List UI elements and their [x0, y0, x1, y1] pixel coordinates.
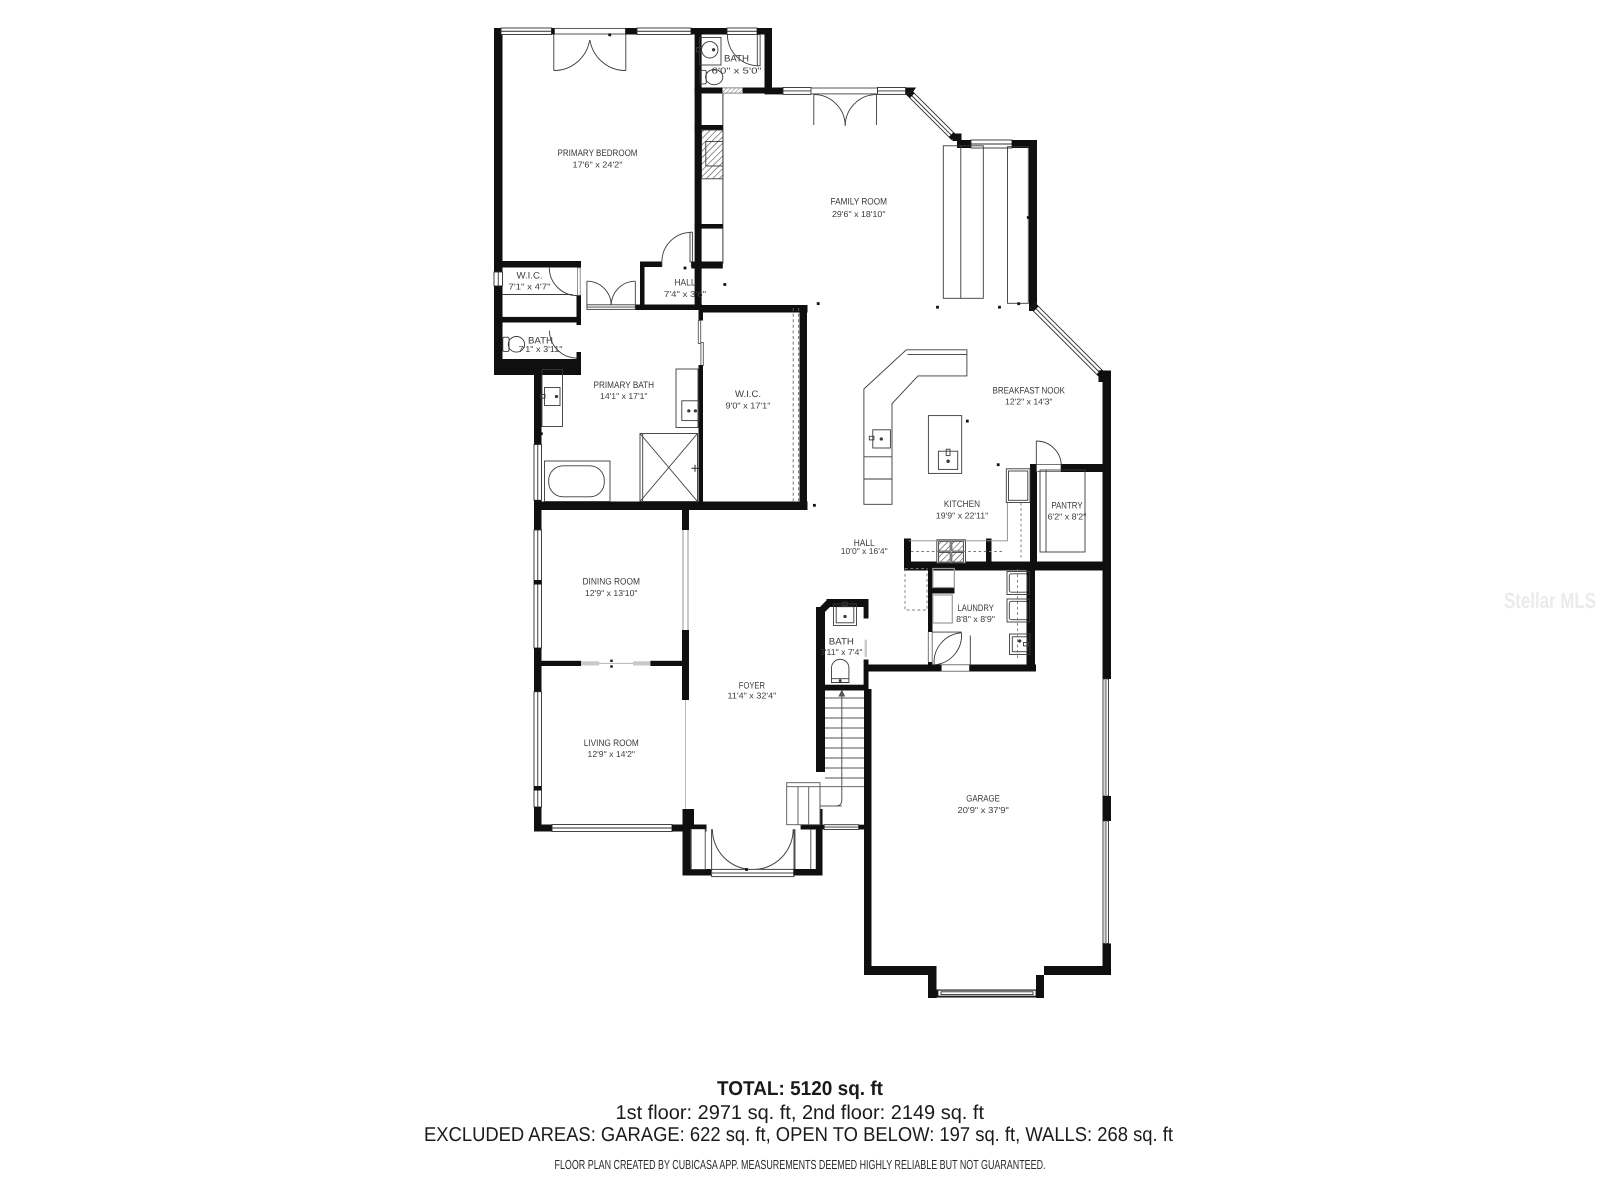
svg-text:LAUNDRY: LAUNDRY	[958, 602, 995, 613]
svg-text:12'9" x 13'10": 12'9" x 13'10"	[585, 588, 638, 598]
svg-text:9'0" x 17'1": 9'0" x 17'1"	[726, 401, 771, 411]
svg-text:6'2" x 8'2": 6'2" x 8'2"	[1048, 512, 1087, 522]
svg-text:10'0" x 16'4": 10'0" x 16'4"	[841, 546, 888, 556]
svg-text:6'0" x 5'0": 6'0" x 5'0"	[712, 66, 762, 76]
svg-text:7'1" x 3'11": 7'1" x 3'11"	[519, 344, 563, 354]
svg-text:TOTAL: 5120 sq. ft: TOTAL: 5120 sq. ft	[717, 1078, 883, 1100]
svg-text:BATH: BATH	[829, 636, 854, 647]
svg-text:8'8" x 8'9": 8'8" x 8'9"	[956, 614, 995, 624]
svg-text:BREAKFAST NOOK: BREAKFAST NOOK	[993, 384, 1066, 395]
svg-text:14'1" x 17'1": 14'1" x 17'1"	[600, 391, 648, 401]
svg-text:KITCHEN: KITCHEN	[944, 498, 980, 509]
svg-text:20'9" x 37'9": 20'9" x 37'9"	[958, 805, 1009, 815]
svg-text:FAMILY ROOM: FAMILY ROOM	[831, 195, 888, 206]
svg-text:11'4" x 32'4": 11'4" x 32'4"	[728, 691, 777, 701]
svg-text:Stellar MLS: Stellar MLS	[1504, 588, 1596, 613]
svg-text:GARAGE: GARAGE	[966, 793, 1000, 804]
svg-text:PRIMARY BEDROOM: PRIMARY BEDROOM	[558, 147, 638, 158]
svg-text:HALL: HALL	[675, 276, 696, 287]
svg-text:BATH: BATH	[724, 52, 749, 63]
svg-text:W.I.C.: W.I.C.	[735, 388, 761, 399]
svg-text:7'4" x 3'6": 7'4" x 3'6"	[664, 289, 706, 299]
svg-text:EXCLUDED AREAS: GARAGE: 622 sq: EXCLUDED AREAS: GARAGE: 622 sq. ft, OPEN…	[424, 1124, 1173, 1146]
svg-text:PRIMARY BATH: PRIMARY BATH	[594, 379, 655, 390]
svg-text:1st floor: 2971 sq. ft, 2nd fl: 1st floor: 2971 sq. ft, 2nd floor: 2149 …	[616, 1102, 985, 1124]
svg-text:7'1" x 4'7": 7'1" x 4'7"	[509, 282, 551, 292]
svg-text:LIVING ROOM: LIVING ROOM	[584, 737, 639, 748]
svg-text:FOYER: FOYER	[739, 679, 765, 690]
svg-text:FLOOR PLAN CREATED BY CUBICASA: FLOOR PLAN CREATED BY CUBICASA APP. MEAS…	[555, 1157, 1046, 1172]
svg-text:17'6" x 24'2": 17'6" x 24'2"	[573, 160, 623, 170]
svg-text:29'6" x 18'10": 29'6" x 18'10"	[832, 209, 886, 219]
svg-text:PANTRY: PANTRY	[1051, 499, 1083, 510]
svg-text:19'9" x 22'11": 19'9" x 22'11"	[936, 511, 989, 521]
svg-text:12'2" x 14'3": 12'2" x 14'3"	[1005, 397, 1053, 407]
svg-text:W.I.C.: W.I.C.	[517, 269, 543, 280]
svg-text:3'11" x 7'4": 3'11" x 7'4"	[820, 647, 863, 657]
svg-text:12'9" x 14'2": 12'9" x 14'2"	[588, 749, 636, 759]
svg-text:DINING ROOM: DINING ROOM	[583, 576, 641, 587]
